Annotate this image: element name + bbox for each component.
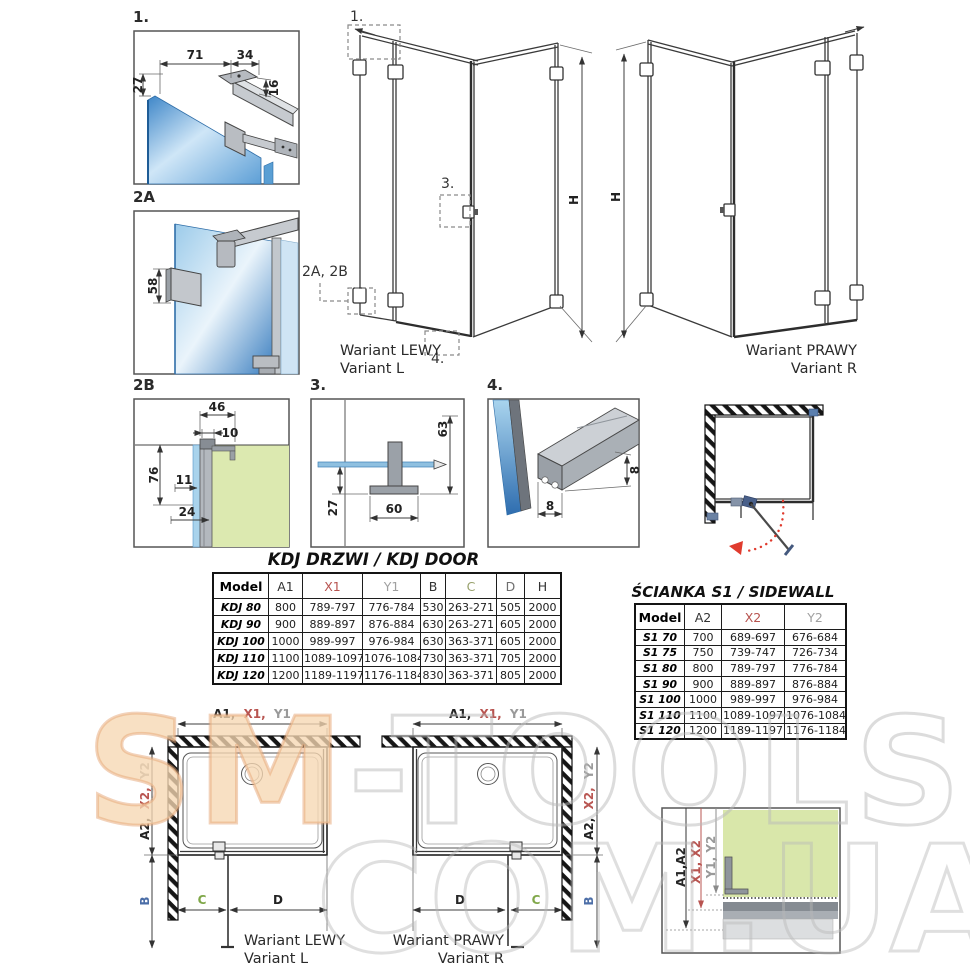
caption-en: Variant L: [244, 951, 308, 967]
caption: Wariant PRAWY Variant R: [393, 933, 504, 967]
bracket-screw: [230, 451, 235, 460]
dimension-label: 8: [628, 466, 642, 474]
dim-y1: Y1: [509, 707, 527, 721]
marker-3: 3.: [441, 176, 454, 192]
dimension-label: 8: [546, 499, 554, 513]
dim-c: C: [198, 893, 207, 907]
dim-d: D: [455, 893, 465, 907]
detail-2a-label: 2A: [133, 188, 155, 206]
bottom-dimensions: D C: [413, 893, 562, 910]
detail-4-drawing: 8 8: [487, 398, 640, 548]
dim-y2: Y2: [138, 762, 152, 780]
technical-drawing-page: 1. 71 34: [0, 0, 970, 970]
value-cell: 505: [497, 599, 525, 616]
dimension-label: 58: [146, 278, 160, 295]
door-handle: [720, 204, 735, 216]
table-row: KDJ 90900889-897876-884630263-2716052000: [213, 616, 561, 633]
value-cell: 2000: [525, 599, 562, 616]
value-cell: 1000: [269, 633, 303, 650]
dim-x1: X1,: [243, 707, 265, 721]
value-cell: 1200: [269, 667, 303, 685]
marker-1: 1.: [350, 9, 363, 25]
table-row: KDJ 1001000989-997976-984630363-37160520…: [213, 633, 561, 650]
dim-x1: X1,: [479, 707, 501, 721]
dimension-label: 10: [222, 426, 239, 440]
caption: Wariant LEWY Variant L: [340, 343, 441, 377]
caption-pl: Wariant PRAWY: [746, 343, 857, 359]
value-cell: 789-797: [722, 661, 785, 677]
dim-b: B: [582, 896, 596, 905]
detail-1-drawing: 71 34 27 16: [133, 30, 300, 185]
dim-a2: A2,: [582, 818, 596, 840]
value-cell: 1200: [685, 723, 722, 739]
hatched-wall-top: [382, 736, 572, 747]
column-header: Model: [213, 573, 269, 599]
height-label: H: [609, 192, 623, 202]
caption-pl: Wariant LEWY: [244, 933, 345, 949]
hatched-wall-left: [168, 747, 178, 920]
detail-3-label: 3.: [310, 376, 326, 394]
door-and-hinge: [508, 842, 524, 947]
model-cell: KDJ 80: [213, 599, 269, 616]
enclosure-plan: [707, 409, 818, 520]
swing-arrowhead: [729, 541, 743, 555]
value-cell: 1100: [685, 707, 722, 723]
door-handle-block: [166, 268, 201, 306]
detail-3-drawing: 63 27 60: [310, 398, 465, 548]
value-cell: 889-897: [303, 616, 363, 633]
glass-profile-band: [723, 902, 838, 911]
value-cell: 726-734: [785, 645, 847, 661]
glass-section: [318, 462, 434, 467]
glass-edge: [193, 445, 200, 547]
door-swing-plan: [695, 398, 895, 570]
value-cell: 830: [421, 667, 446, 685]
value-cell: 900: [269, 616, 303, 633]
wall-mount-section: A1,A2 X1, X2 Y1, Y2: [658, 805, 858, 965]
value-cell: 789-797: [303, 599, 363, 616]
detail-1-label: 1.: [133, 8, 149, 26]
value-cell: 1176-1184: [785, 723, 847, 739]
wall-profile-end: [707, 513, 718, 520]
table-row: KDJ 11011001089-10971076-1084730363-3717…: [213, 650, 561, 667]
profile-band: [723, 911, 838, 919]
model-cell: KDJ 120: [213, 667, 269, 685]
hinges-and-clamps: [353, 60, 563, 308]
value-cell: 989-997: [722, 692, 785, 708]
value-cell: 605: [497, 633, 525, 650]
height-label: H: [567, 195, 581, 205]
value-cell: 1100: [269, 650, 303, 667]
hinges-and-clamps: [640, 55, 863, 306]
dim-c: C: [532, 893, 541, 907]
bracket-flange: [212, 446, 235, 451]
value-cell: 750: [685, 645, 722, 661]
value-cell: 363-371: [446, 650, 497, 667]
model-cell: KDJ 90: [213, 616, 269, 633]
table-row: S1 12012001189-11971176-1184: [635, 723, 846, 739]
value-cell: 730: [421, 650, 446, 667]
door-swing-arc: [747, 501, 783, 551]
enclosure-outline: [648, 27, 864, 337]
tray-band: [723, 919, 833, 939]
value-cell: 1089-1097: [303, 650, 363, 667]
dim-y1: Y1: [273, 707, 291, 721]
wall-profile: [200, 445, 212, 547]
value-cell: 263-271: [446, 616, 497, 633]
model-cell: S1 110: [635, 707, 685, 723]
table-row: S1 11011001089-10971076-1084: [635, 707, 846, 723]
view-variant-left: H 1. 3. 2A, 2B 4. Wariant LEWY Variant L: [300, 5, 610, 380]
top-dimension: A1, X1, Y1: [178, 707, 327, 737]
table-row: KDJ 12012001189-11971176-1184830363-3718…: [213, 667, 561, 685]
dimension-label: 60: [386, 502, 403, 516]
value-cell: 889-897: [722, 676, 785, 692]
caption-en: Variant L: [340, 361, 404, 377]
value-cell: 530: [421, 599, 446, 616]
value-cell: 776-784: [785, 661, 847, 677]
value-cell: 689-697: [722, 630, 785, 646]
svg-text:A2, X2, Y2: A2, X2, Y2: [582, 762, 596, 840]
model-cell: S1 70: [635, 630, 685, 646]
wall-section-green: [212, 445, 289, 547]
dimension-label: 34: [237, 48, 254, 62]
value-cell: 363-371: [446, 633, 497, 650]
enclosure-outline: [355, 29, 558, 337]
dimension-label: 27: [326, 500, 340, 517]
caption: Wariant LEWY Variant L: [244, 933, 345, 967]
dim-x2: X2,: [582, 787, 596, 809]
value-cell: 976-984: [785, 692, 847, 708]
table-row: S1 70700689-697676-684: [635, 630, 846, 646]
value-cell: 605: [497, 616, 525, 633]
table-row: S1 75750739-747726-734: [635, 645, 846, 661]
dim-b: B: [138, 896, 152, 905]
plan-variant-left: A1, X1, Y1 A2,: [138, 703, 368, 968]
enclosure-plan: [413, 747, 562, 855]
value-cell: 676-684: [785, 630, 847, 646]
value-cell: 800: [685, 661, 722, 677]
dimension-label: 11: [176, 473, 193, 487]
table-row: S1 90900889-897876-884: [635, 676, 846, 692]
value-cell: 900: [685, 676, 722, 692]
column-header: H: [525, 573, 562, 599]
model-cell: S1 120: [635, 723, 685, 739]
marker-2a-2b: 2A, 2B: [302, 264, 348, 280]
column-header: B: [421, 573, 446, 599]
model-cell: S1 75: [635, 645, 685, 661]
detail-markers: 1. 3. 2A, 2B 4.: [302, 9, 470, 367]
column-header: X2: [722, 604, 785, 630]
value-cell: 1176-1184: [363, 667, 421, 685]
value-cell: 363-371: [446, 667, 497, 685]
value-cell: 2000: [525, 667, 562, 685]
value-cell: 630: [421, 633, 446, 650]
value-cell: 1189-1197: [303, 667, 363, 685]
dimension-label: 46: [209, 400, 226, 414]
enclosure-plan: [178, 747, 327, 855]
value-cell: 705: [497, 650, 525, 667]
value-cell: 776-784: [363, 599, 421, 616]
value-cell: 2000: [525, 650, 562, 667]
caption: Wariant PRAWY Variant R: [746, 343, 857, 377]
caption-en: Variant R: [438, 951, 504, 967]
view-variant-right: H Wariant PRAWY Variant R: [610, 5, 900, 380]
label-a1-a2: A1,A2: [674, 847, 688, 887]
hatched-wall-top: [168, 736, 360, 747]
wall-bracket: [809, 409, 818, 416]
dimension-label: 71: [187, 48, 204, 62]
column-header: A2: [685, 604, 722, 630]
svg-text:A1, X1, Y1: A1, X1, Y1: [213, 707, 291, 721]
dim-x2: X2,: [138, 787, 152, 809]
column-header: Y1: [363, 573, 421, 599]
svg-text:A2, X2, Y2: A2, X2, Y2: [138, 762, 152, 840]
plan-variant-right: A1, X1, Y1 A2,: [368, 703, 613, 968]
sidewall-table: ModelA2X2Y2S1 70700689-697676-684S1 7575…: [634, 603, 847, 740]
dim-a2: A2,: [138, 818, 152, 840]
kdj-door-table: ModelA1X1Y1BCDHKDJ 80800789-797776-78453…: [212, 572, 562, 685]
top-dimension: A1, X1, Y1: [413, 707, 562, 737]
bottom-dimensions: C D: [178, 893, 327, 910]
value-cell: 630: [421, 616, 446, 633]
table-row: KDJ 80800789-797776-784530263-2715052000: [213, 599, 561, 616]
hatched-wall-left: [705, 415, 715, 523]
detail-2a-drawing: 58: [133, 210, 300, 375]
value-cell: 800: [269, 599, 303, 616]
model-cell: KDJ 110: [213, 650, 269, 667]
column-header: D: [497, 573, 525, 599]
value-cell: 989-997: [303, 633, 363, 650]
wall-profile: [272, 238, 281, 374]
value-cell: 739-747: [722, 645, 785, 661]
value-cell: 1076-1084: [363, 650, 421, 667]
value-cell: 976-984: [363, 633, 421, 650]
hatched-wall-top: [705, 405, 823, 415]
handle-base: [370, 486, 418, 494]
value-cell: 1189-1197: [722, 723, 785, 739]
dim-a1: A1,: [213, 707, 235, 721]
value-cell: 876-884: [363, 616, 421, 633]
detail-4-label: 4.: [487, 376, 503, 394]
dimension-label: 16: [267, 80, 281, 97]
hatched-wall-right: [562, 747, 572, 920]
dim-a1: A1,: [449, 707, 471, 721]
svg-text:A1, X1, Y1: A1, X1, Y1: [449, 707, 527, 721]
value-cell: 1076-1084: [785, 707, 847, 723]
label-y1-y2: Y1, Y2: [704, 836, 718, 880]
label-x1-x2: X1, X2: [689, 840, 703, 884]
value-cell: 876-884: [785, 676, 847, 692]
value-cell: 2000: [525, 616, 562, 633]
value-cell: 700: [685, 630, 722, 646]
dimension-label: 76: [147, 467, 161, 484]
open-door: [751, 504, 789, 550]
value-cell: 2000: [525, 633, 562, 650]
caption-pl: Wariant PRAWY: [393, 933, 504, 949]
column-header: X1: [303, 573, 363, 599]
model-cell: S1 90: [635, 676, 685, 692]
handle-post: [388, 442, 402, 486]
dim-y2: Y2: [582, 762, 596, 780]
table-row: S1 1001000989-997976-984: [635, 692, 846, 708]
column-header: Model: [635, 604, 685, 630]
dimension-label: 27: [131, 77, 145, 94]
dimension-label: 63: [436, 421, 450, 438]
dimension-label: 24: [179, 505, 196, 519]
model-cell: KDJ 100: [213, 633, 269, 650]
model-cell: S1 80: [635, 661, 685, 677]
value-cell: 1089-1097: [722, 707, 785, 723]
column-header: C: [446, 573, 497, 599]
column-header: A1: [269, 573, 303, 599]
model-cell: S1 100: [635, 692, 685, 708]
detail-2b-label: 2B: [133, 376, 155, 394]
caption-en: Variant R: [791, 361, 857, 377]
height-dimension: H: [560, 45, 592, 342]
dim-d: D: [273, 893, 283, 907]
wall-green: [723, 810, 838, 897]
value-cell: 805: [497, 667, 525, 685]
detail-2b-drawing: 46 10 76 11 24: [133, 398, 290, 548]
kdj-table-title: KDJ DRZWI / KDJ DOOR: [212, 550, 535, 569]
value-cell: 1000: [685, 692, 722, 708]
door-and-hinge: [213, 842, 234, 947]
column-header: Y2: [785, 604, 847, 630]
caption-pl: Wariant LEWY: [340, 343, 441, 359]
value-cell: 263-271: [446, 599, 497, 616]
table-row: S1 80800789-797776-784: [635, 661, 846, 677]
